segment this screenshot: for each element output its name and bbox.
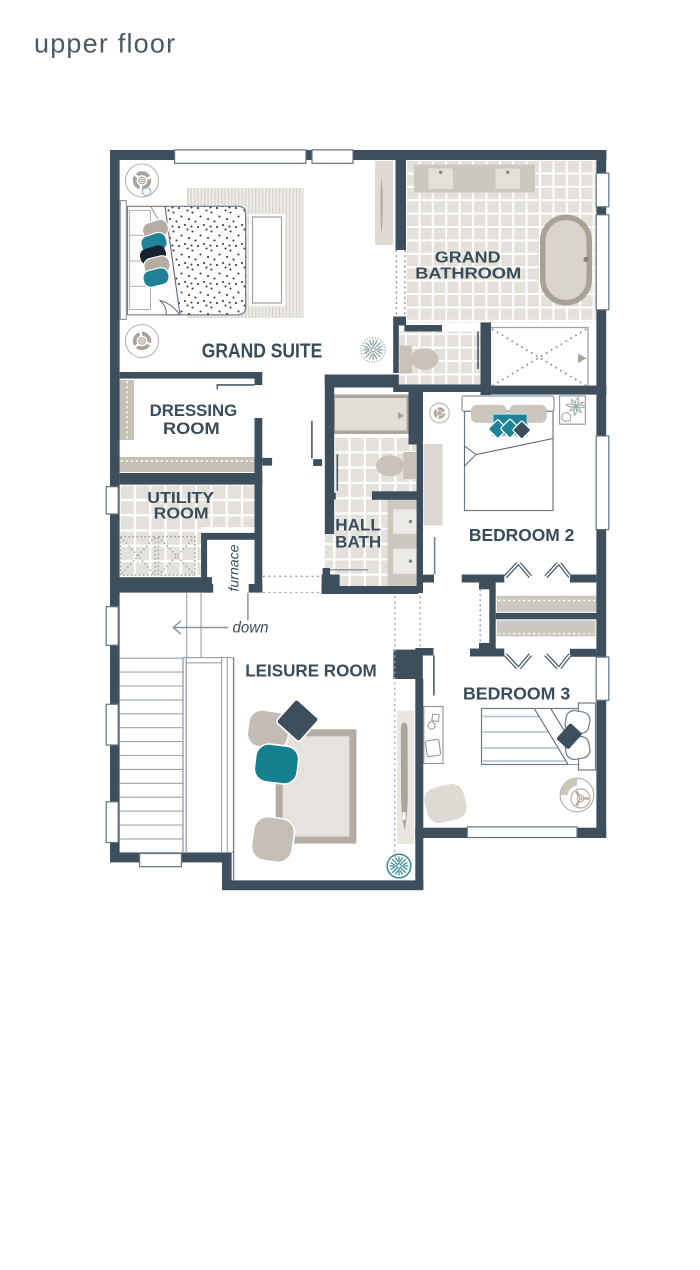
svg-text:upper floor: upper floor (34, 29, 176, 59)
svg-text:GRAND SUITE: GRAND SUITE (202, 340, 323, 362)
svg-text:BATHROOM: BATHROOM (415, 266, 521, 283)
svg-text:ROOM: ROOM (154, 506, 209, 523)
svg-text:down: down (233, 619, 269, 636)
svg-text:BEDROOM 2: BEDROOM 2 (469, 526, 574, 545)
svg-text:ROOM: ROOM (163, 419, 220, 438)
svg-text:BATH: BATH (335, 533, 381, 551)
svg-text:HALL: HALL (335, 517, 381, 535)
svg-text:GRAND: GRAND (435, 249, 501, 266)
svg-text:LEISURE ROOM: LEISURE ROOM (245, 661, 377, 681)
svg-text:DRESSING: DRESSING (150, 401, 238, 420)
svg-text:BEDROOM 3: BEDROOM 3 (463, 685, 570, 704)
svg-text:furnace: furnace (227, 545, 242, 592)
